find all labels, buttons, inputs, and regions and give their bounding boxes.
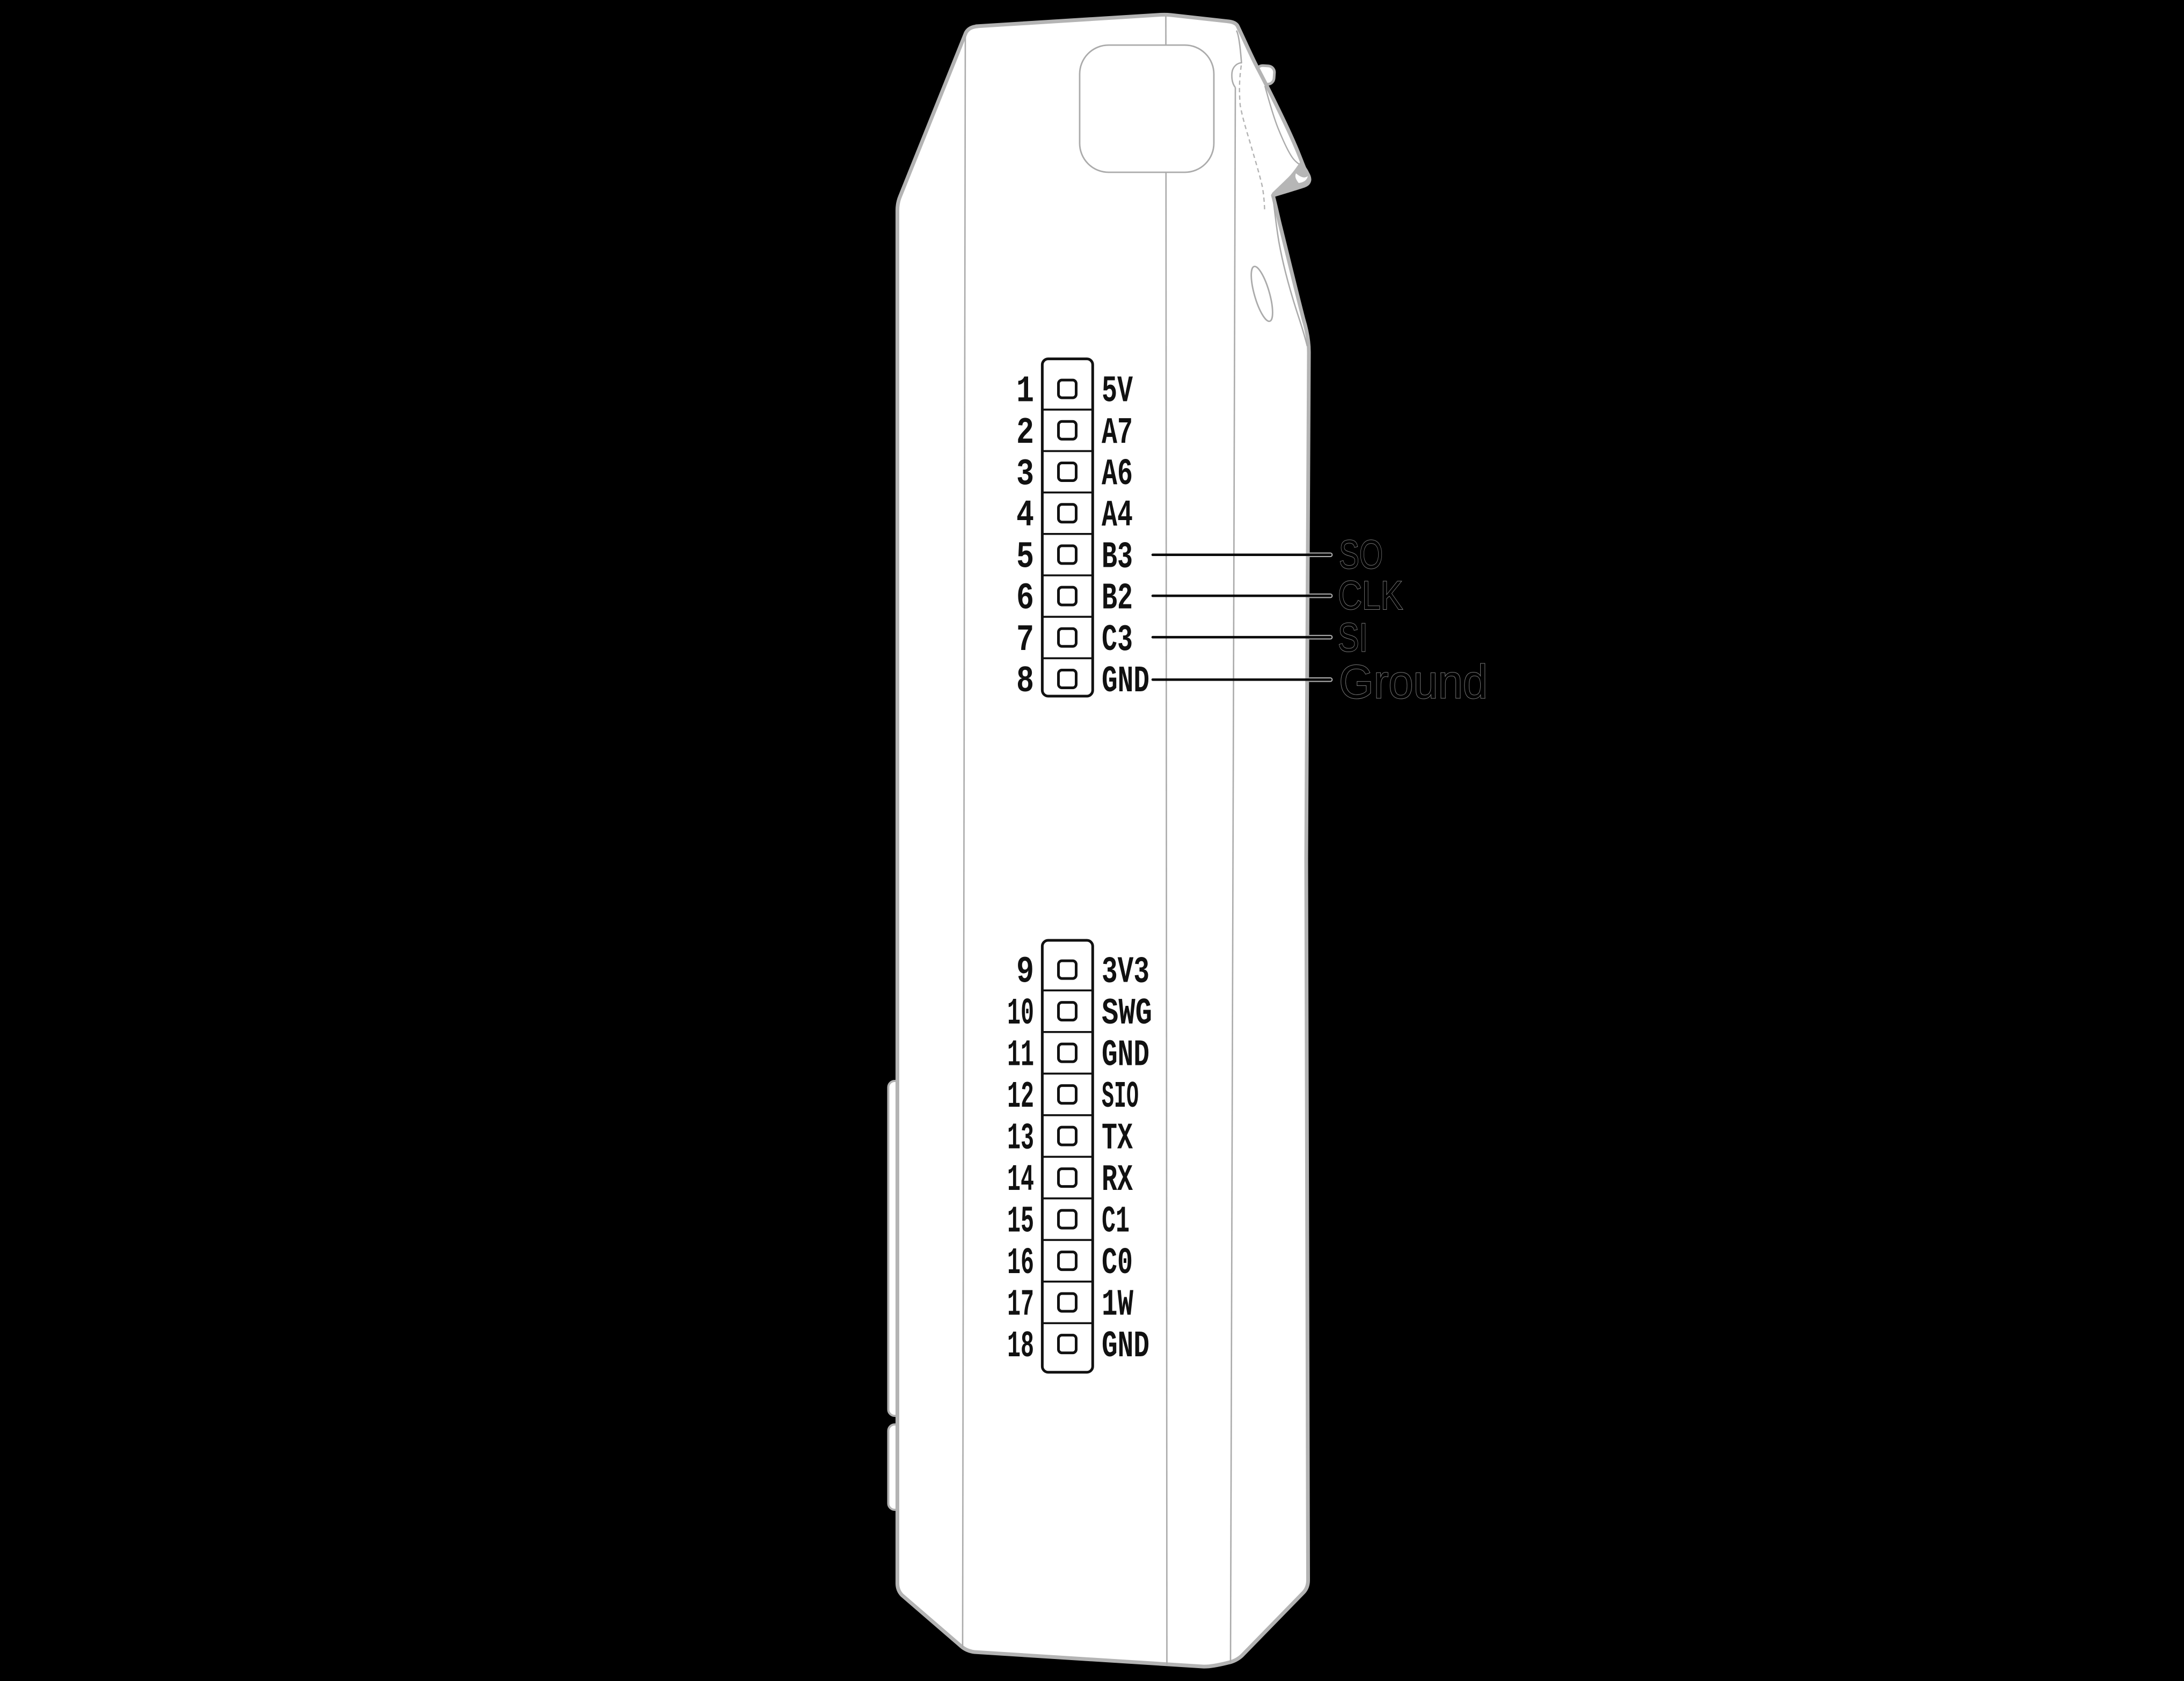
svg-text:C1: C1 bbox=[1102, 1201, 1130, 1244]
svg-text:Ground: Ground bbox=[1339, 655, 1488, 708]
svg-text:SWG: SWG bbox=[1102, 993, 1152, 1035]
svg-text:14: 14 bbox=[1007, 1159, 1034, 1202]
svg-text:6: 6 bbox=[1016, 578, 1034, 620]
svg-text:A6: A6 bbox=[1102, 454, 1133, 496]
svg-text:5V: 5V bbox=[1102, 371, 1133, 413]
svg-text:GND: GND bbox=[1102, 1326, 1149, 1368]
svg-text:SI: SI bbox=[1338, 615, 1368, 660]
svg-text:12: 12 bbox=[1007, 1076, 1034, 1119]
svg-text:RX: RX bbox=[1102, 1159, 1133, 1202]
svg-text:8: 8 bbox=[1016, 661, 1034, 703]
svg-text:2: 2 bbox=[1016, 412, 1034, 455]
svg-text:15: 15 bbox=[1007, 1201, 1034, 1244]
svg-text:3: 3 bbox=[1016, 454, 1034, 496]
svg-text:11: 11 bbox=[1007, 1035, 1034, 1077]
svg-text:SO: SO bbox=[1339, 532, 1383, 577]
svg-text:C0: C0 bbox=[1102, 1243, 1133, 1285]
svg-text:B3: B3 bbox=[1102, 536, 1133, 579]
svg-text:5: 5 bbox=[1016, 536, 1034, 579]
svg-text:1: 1 bbox=[1016, 371, 1034, 413]
svg-text:A4: A4 bbox=[1102, 495, 1133, 537]
svg-text:3V3: 3V3 bbox=[1102, 952, 1149, 994]
svg-text:7: 7 bbox=[1016, 619, 1034, 662]
svg-text:GND: GND bbox=[1102, 661, 1149, 703]
svg-text:16: 16 bbox=[1007, 1243, 1034, 1285]
svg-text:18: 18 bbox=[1007, 1326, 1034, 1368]
svg-text:A7: A7 bbox=[1102, 412, 1133, 455]
svg-text:17: 17 bbox=[1007, 1284, 1034, 1327]
svg-text:13: 13 bbox=[1007, 1118, 1034, 1160]
svg-text:CLK: CLK bbox=[1338, 573, 1403, 618]
svg-text:B2: B2 bbox=[1102, 578, 1133, 620]
svg-text:1W: 1W bbox=[1102, 1284, 1133, 1327]
svg-text:TX: TX bbox=[1102, 1118, 1133, 1160]
svg-text:C3: C3 bbox=[1102, 619, 1133, 662]
svg-text:SIO: SIO bbox=[1102, 1076, 1139, 1119]
svg-text:GND: GND bbox=[1102, 1035, 1149, 1077]
svg-text:9: 9 bbox=[1016, 952, 1034, 994]
svg-text:10: 10 bbox=[1007, 993, 1034, 1035]
svg-text:4: 4 bbox=[1016, 495, 1034, 537]
